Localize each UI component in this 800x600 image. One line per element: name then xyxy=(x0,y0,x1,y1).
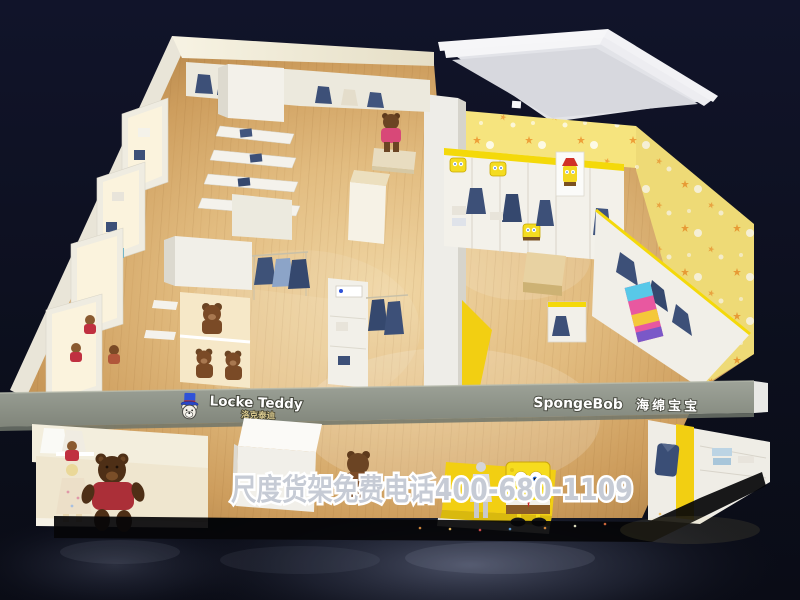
folded-clothes xyxy=(452,206,466,215)
teddy-bear-plush xyxy=(108,345,120,364)
folded-clothes xyxy=(712,448,732,456)
reflection xyxy=(405,542,595,574)
spongebob-head-figure xyxy=(450,158,466,172)
folded-clothes xyxy=(336,322,348,331)
wood-table xyxy=(348,170,390,244)
locke-teddy-brand-text: Locke Teddy xyxy=(209,393,303,412)
door-notch xyxy=(512,101,521,109)
spongebob-banner xyxy=(556,152,584,196)
red-sweater xyxy=(92,482,134,510)
folded-clothes xyxy=(452,218,466,226)
denim-item xyxy=(250,153,263,162)
watermark-text: 尺度货架免费电话400-680-1109 xyxy=(231,473,633,508)
render-canvas: Locke Teddy 洛克泰迪 SpongeBob 海绵宝宝 xyxy=(0,0,800,600)
denim-item xyxy=(238,177,251,186)
wood-bench xyxy=(523,252,566,286)
teddy-bear-plush xyxy=(202,303,222,334)
reflection xyxy=(60,540,180,564)
denim-item xyxy=(240,128,253,137)
spongebob-brand-cn-text: 海绵宝宝 xyxy=(636,397,700,414)
spongebob-plush-figure xyxy=(523,224,540,241)
spongebob-brand-text: SpongeBob xyxy=(533,395,623,413)
denim-jacket-display xyxy=(654,443,679,477)
denim-item xyxy=(338,356,350,365)
beam-end-cap xyxy=(754,381,768,413)
front-left-display xyxy=(32,424,208,532)
reflection xyxy=(220,546,380,574)
pink-shirt xyxy=(381,128,401,143)
folded-clothes xyxy=(713,458,731,465)
reflection xyxy=(620,516,760,544)
teddy-bear-plush xyxy=(70,343,82,362)
folded-clothes xyxy=(490,212,503,220)
store-3d-render: Locke Teddy 洛克泰迪 SpongeBob 海绵宝宝 xyxy=(0,0,800,600)
mid-gondola xyxy=(328,278,368,388)
teddy-bear-plush xyxy=(84,315,96,334)
watermark: 尺度货架免费电话400-680-1109 xyxy=(231,473,633,508)
spongebob-head-figure xyxy=(490,162,506,176)
folded-clothes xyxy=(738,456,754,463)
denim-jacket xyxy=(195,74,213,94)
